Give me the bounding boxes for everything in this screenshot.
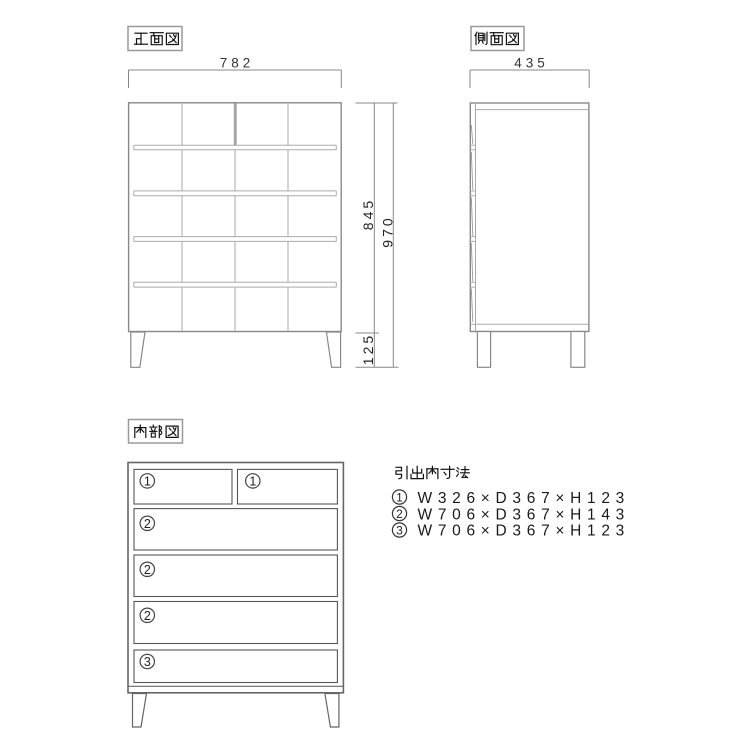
svg-text:W326×D367×H123: W326×D367×H123 [418, 490, 631, 507]
svg-text:782: 782 [220, 56, 255, 71]
svg-text:2: 2 [396, 507, 403, 521]
svg-text:1: 1 [249, 474, 256, 488]
svg-text:2: 2 [144, 517, 151, 531]
svg-text:970: 970 [380, 215, 396, 247]
svg-text:125: 125 [360, 333, 376, 365]
svg-text:1: 1 [144, 474, 151, 488]
svg-text:W706×D367×H123: W706×D367×H123 [418, 523, 631, 540]
svg-text:1: 1 [396, 490, 403, 504]
svg-text:435: 435 [514, 56, 549, 71]
svg-text:2: 2 [144, 563, 151, 577]
svg-text:W706×D367×H143: W706×D367×H143 [418, 507, 631, 524]
svg-text:845: 845 [360, 198, 376, 230]
svg-text:2: 2 [144, 609, 151, 623]
svg-text:3: 3 [396, 523, 403, 537]
svg-text:3: 3 [144, 655, 151, 669]
